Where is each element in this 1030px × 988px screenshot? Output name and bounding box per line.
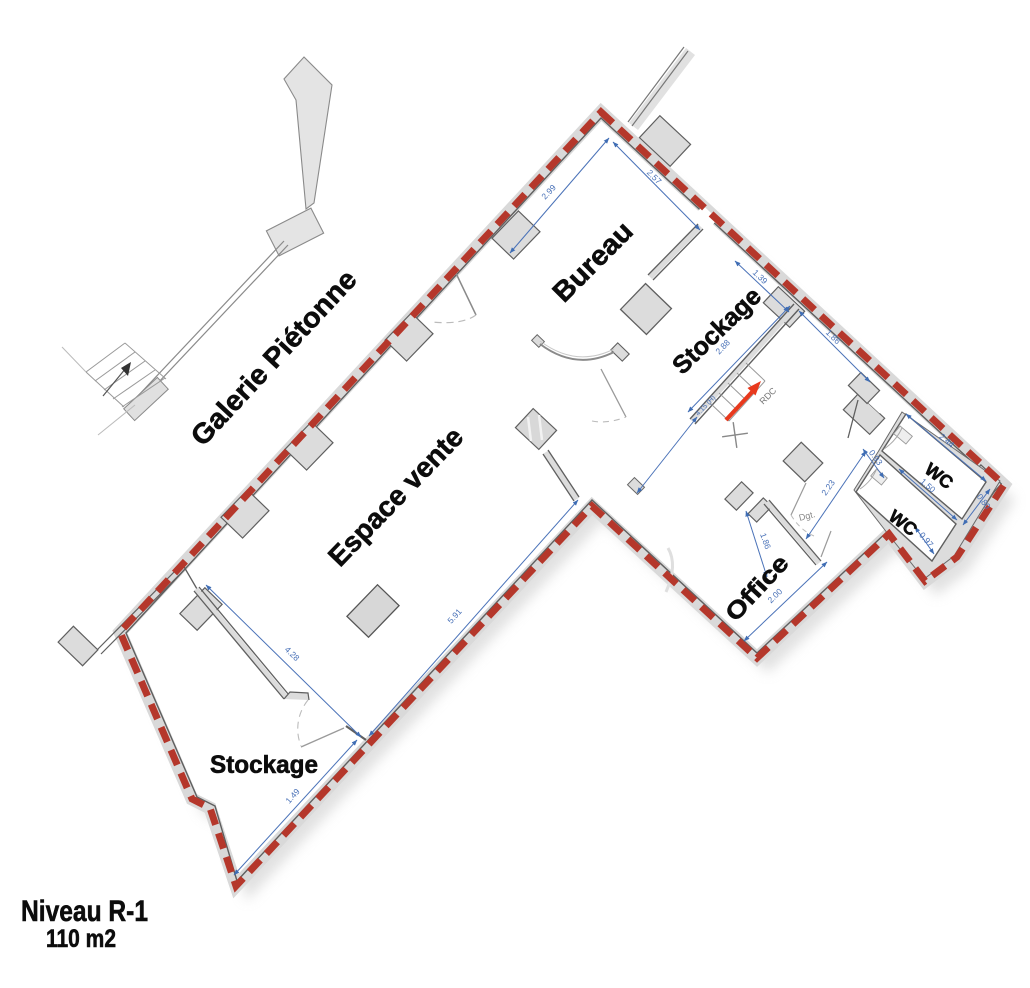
svg-text:Niveau R-1: Niveau R-1: [21, 895, 148, 928]
svg-text:Stockage: Stockage: [210, 751, 318, 779]
svg-text:110 m2: 110 m2: [46, 925, 116, 953]
